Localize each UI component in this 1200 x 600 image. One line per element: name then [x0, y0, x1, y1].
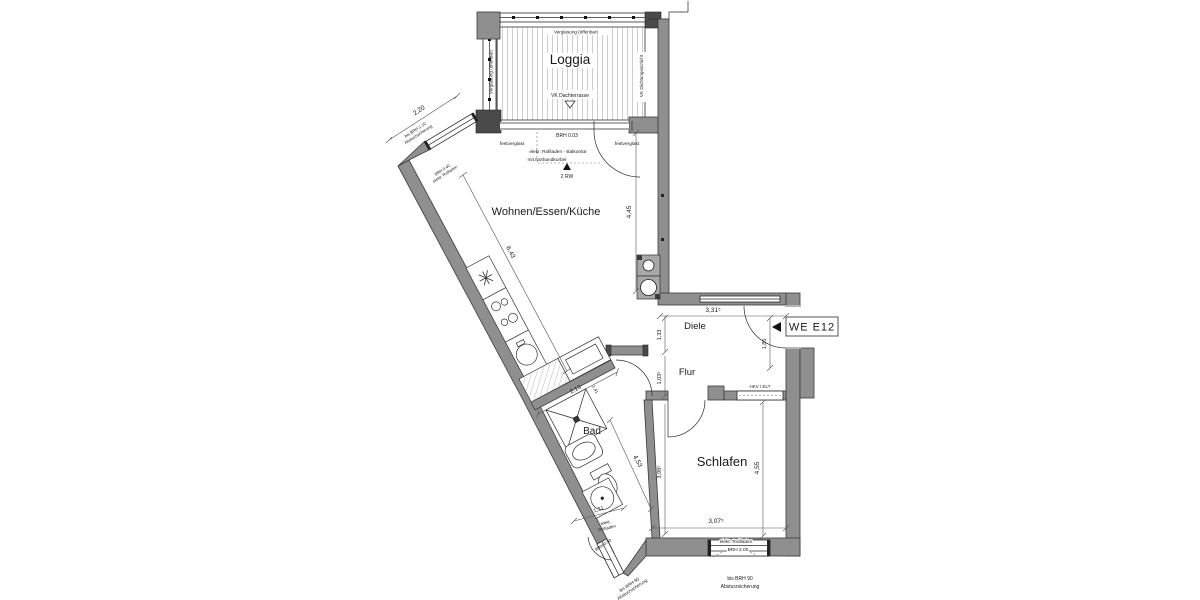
loggia-terrace-edge-label: VK Dachterrasse	[551, 93, 589, 99]
shaft-pipe-icon	[643, 260, 654, 271]
dim-1-33: 1,33	[657, 330, 663, 341]
wall-flur-stub	[608, 346, 646, 355]
loggia-area: Verglasung (öffenbar) Verglasung (öffenb…	[476, 12, 662, 133]
dim-3-31: 3,31⁵	[705, 307, 721, 314]
loggia-corner-bottom-left	[476, 110, 501, 133]
note-brh-003: BRH 0.03	[556, 133, 578, 139]
note-2-rw: 2 RW	[561, 174, 574, 180]
dim-1-03: 1,03⁵	[656, 372, 663, 385]
shaft-pipe-icon	[641, 280, 657, 296]
note-schlafen-rollladen: elekt. Rollladen	[720, 539, 753, 545]
loggia-sealing-edge-label: VK Dichtungsschicht	[639, 54, 644, 97]
floorplan-page: Verglasung (öffenbar) Verglasung (öffenb…	[0, 0, 1200, 600]
wall-right-outer	[786, 348, 800, 556]
wall-right-of-living	[658, 19, 669, 295]
dim-4-45: 4,45	[626, 205, 633, 218]
loggia-glazing-top-label: Verglasung (öffenbar)	[554, 30, 599, 35]
note-nothandkurbel: mit Nothandkurbel	[528, 157, 567, 163]
floorplan-canvas: Verglasung (öffenbar) Verglasung (öffenb…	[0, 0, 1200, 600]
dim-1-85: 1,85	[762, 339, 768, 350]
dim-3-98: 3,98⁵	[656, 466, 663, 479]
loggia-glazing-left-label: Verglasung (öffenbar)	[489, 49, 494, 94]
room-label-schlafen: Schlafen	[697, 454, 748, 469]
unit-label-text: WE E12	[789, 322, 835, 334]
note-festverglast-right: festverglast	[615, 141, 640, 147]
loggia-corner-top-left	[477, 12, 500, 39]
room-label-flur: Flur	[679, 367, 695, 378]
room-label-diele: Diele	[684, 321, 706, 332]
note-schlafen-bis-brh-90: bis BRH 90	[727, 576, 753, 582]
note-schlafen-brh-200: BRH 2.00	[728, 547, 749, 553]
room-label-bad: Bad	[583, 426, 601, 437]
dim-3-07: 3,07⁵	[708, 518, 724, 525]
note-hkv-elt: HKV / ELT	[750, 384, 771, 389]
wall-cap	[643, 345, 648, 356]
wall-entry-pier	[800, 348, 814, 398]
wall-joint-marker	[661, 194, 664, 197]
installation-shaft	[637, 255, 660, 299]
room-label-wohnen: Wohnen/Essen/Küche	[492, 206, 601, 218]
note-rollladen-balkontuer: elekr. Rollladen - Balkontür	[529, 149, 587, 155]
loggia-corner-bottom-right	[629, 117, 662, 133]
dim-4-55: 4,55	[754, 461, 761, 474]
loggia-top-glazing	[500, 13, 646, 22]
note-festverglast-left: festverglast	[500, 141, 525, 147]
note-schlafen-absturzsicherung: Absturzsicherung	[721, 584, 760, 590]
wall-joint-marker	[661, 238, 664, 241]
room-label-loggia: Loggia	[550, 52, 591, 67]
wall-schlafen-door-post	[708, 386, 724, 400]
